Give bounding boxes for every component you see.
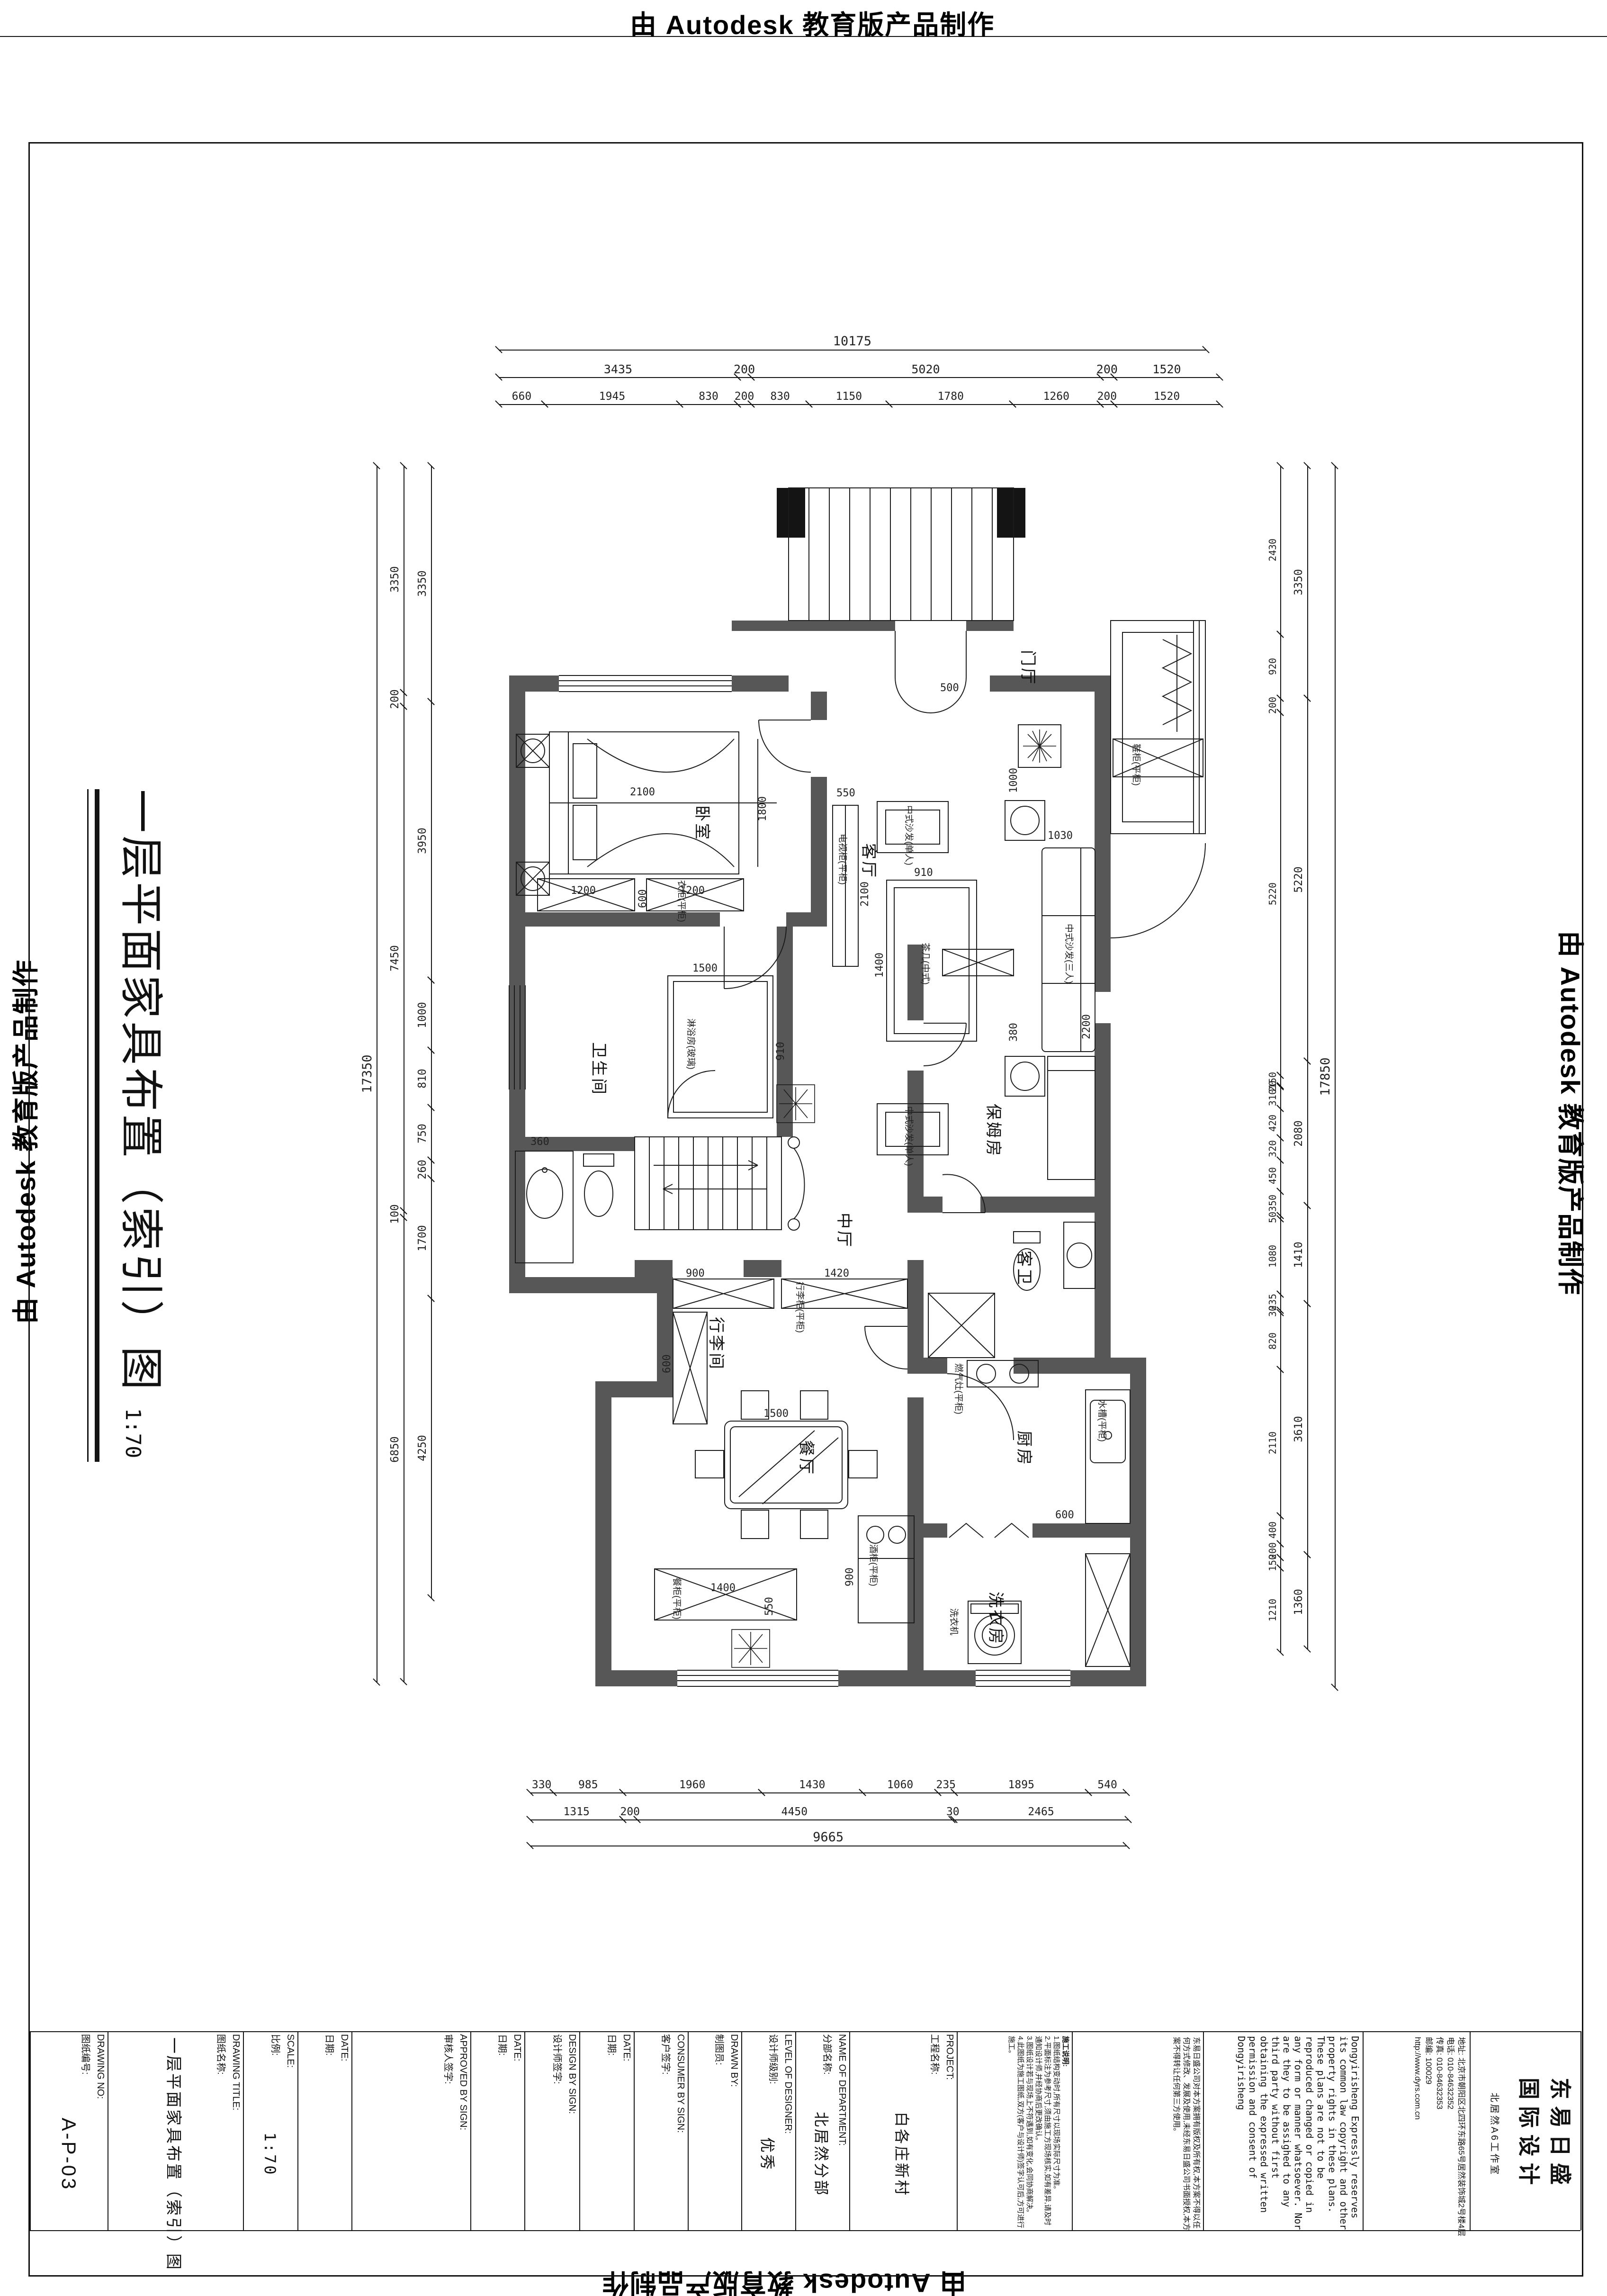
inner-dim-label: 1420: [824, 1268, 849, 1279]
inner-dim-label: 1800: [757, 786, 769, 821]
dim-label: 1410: [1293, 1222, 1306, 1288]
dim-label: 985: [555, 1779, 621, 1791]
dim-line: [530, 1819, 1128, 1820]
titleblock-cell: PROJECT:工程名称:白各庄新村: [849, 2031, 957, 2230]
titleblock-copyright-cn: 东易日盛公司对本方案拥有版权及所有权,本方案不得以任何方式修改、发展及使用,未经…: [1070, 2033, 1203, 2236]
titleblock-cell-label-cn: 比例:: [269, 2034, 283, 2056]
dim-label: 3610: [1293, 1396, 1306, 1462]
inner-dim-label: 500: [940, 682, 959, 694]
titleblock-cell-label-en: PROJECT:: [944, 2034, 955, 2080]
inner-dim-label: 600: [637, 880, 649, 908]
dim-label: 1430: [779, 1779, 845, 1791]
dim-label: 3350: [416, 550, 430, 617]
furniture-label: 餐柜(平柜): [673, 1577, 684, 1639]
inner-dim-label: 600: [661, 1345, 673, 1373]
dim-label: 1780: [917, 390, 984, 403]
dim-label: 235: [913, 1779, 979, 1791]
notes-title: 施工说明:: [1061, 2036, 1070, 2231]
inner-dim-label: 360: [530, 1136, 549, 1148]
room-label: 餐厅: [800, 1440, 819, 1483]
dim-label: 3350: [1293, 549, 1306, 615]
titleblock-copyright-en: Dongyirisheng Expressly reserves its com…: [1202, 2033, 1363, 2234]
dim-line: [1335, 466, 1336, 1687]
furniture-label: 洗衣机: [950, 1608, 961, 1641]
room-label: 保姆房: [988, 1104, 1006, 1165]
titleblock-cell-label-cn: 图纸名称:: [215, 2034, 229, 2075]
titleblock-cell-value: 一层平面家具布置（索引）图: [108, 2083, 243, 2225]
inner-dim-label: 900: [686, 1268, 705, 1279]
titleblock-cell-label-en: CONSUMER BY SIGN:: [675, 2034, 686, 2133]
dim-label: 17850: [1318, 1044, 1334, 1110]
titleblock-cell-label-cn: 工程名称:: [929, 2034, 943, 2075]
titleblock-cell: DESIGN BY SIGN:设计师签字:: [524, 2031, 579, 2230]
dim-line: [431, 466, 432, 1598]
titleblock-contact: 地址: 北京市朝阳区北四环东路65号居然装饰城2号楼4层电话: 010-8463…: [1360, 2033, 1470, 2236]
inner-dim-label: 1500: [763, 1408, 789, 1420]
inner-dim-label: 2100: [630, 786, 655, 798]
dim-label: 3350: [389, 546, 403, 612]
titleblock-cell-label-cn: 审核人签字:: [442, 2034, 456, 2084]
dim-label: 10175: [819, 334, 885, 349]
titleblock-cell: DATE:日期:: [297, 2031, 351, 2230]
titleblock-cell: SCALE:比例:1:70: [243, 2031, 297, 2230]
dim-label: 4250: [416, 1415, 430, 1481]
titleblock-cell-label-en: DRAWN BY:: [728, 2034, 739, 2087]
dim-label: 200: [1074, 390, 1140, 403]
dim-label: 1520: [1134, 390, 1200, 403]
room-label: 中厅: [838, 1213, 857, 1255]
dim-label: 200: [389, 666, 403, 732]
titleblock-cell-label-en: DATE:: [339, 2034, 350, 2061]
dim-label: 2110: [1267, 1410, 1279, 1476]
inner-dim-label: 910: [775, 1033, 787, 1061]
titleblock-cell-label-cn: 制图员:: [713, 2034, 727, 2065]
room-label: 门厅: [1022, 650, 1041, 693]
titleblock-cell: CONSUMER BY SIGN:客户签字:: [634, 2031, 688, 2230]
contact-line: 传真: 010-84632353: [1434, 2037, 1445, 2232]
inner-dim-label: 550: [836, 787, 855, 799]
furniture-label: 鞋柜(平柜): [1132, 744, 1143, 805]
inner-dim-label: 1500: [692, 963, 718, 974]
dim-label: 1150: [816, 390, 882, 403]
room-label: 厨房: [1018, 1431, 1037, 1473]
furniture-label: 酒柜(平柜): [869, 1544, 880, 1606]
inner-dim-label: 600: [1055, 1509, 1074, 1521]
dim-line: [404, 466, 404, 1682]
titleblock-cell: LEVEL OF DESIGNER:设计师级别:优秀: [741, 2031, 795, 2230]
dim-label: 7450: [389, 925, 403, 991]
titleblock-cell-label-en: APPROVED BY SIGN:: [458, 2034, 468, 2130]
titleblock-cell: DRAWING TITLE:图纸名称:一层平面家具布置（索引）图: [108, 2031, 243, 2230]
dim-label: 4450: [761, 1806, 827, 1818]
inner-dim-label: 1000: [1008, 758, 1020, 793]
inner-dim-label: 1030: [1048, 830, 1073, 842]
titleblock-cell: DATE:日期:: [470, 2031, 524, 2230]
notes-item: 2.平面标注为参考尺寸,须由施工方现场核实,如有差异,请及时通知设计师,并经协商…: [1034, 2036, 1052, 2231]
dim-line: [1307, 466, 1308, 1649]
dim-label: 5220: [1293, 846, 1306, 913]
dim-label: 5020: [892, 362, 959, 376]
dim-label: 660: [488, 390, 555, 403]
dim-line: [377, 466, 377, 1682]
inner-dim-label: 1200: [571, 885, 596, 897]
inner-dim-label: 1200: [680, 885, 705, 897]
titleblock-cell-label-cn: 日期:: [323, 2034, 337, 2056]
dim-label: 2465: [1008, 1806, 1074, 1818]
furniture-label: 燃气灶(平柜): [954, 1363, 966, 1434]
titleblock-cell: APPROVED BY SIGN:审核人签字:: [351, 2031, 470, 2230]
room-label: 卫生间: [593, 1042, 612, 1104]
company-name-line1: 东易日盛: [1546, 2037, 1577, 2232]
notes-item: 1.图纸结构变动时,所有尺寸以现场实际尺寸为准。: [1052, 2036, 1061, 2231]
titleblock-cell: DATE:日期:: [579, 2031, 634, 2230]
titleblock-cell-value: 白各庄新村: [849, 2083, 957, 2225]
dim-label: 540: [1074, 1779, 1140, 1791]
dim-label: 2430: [1267, 517, 1279, 583]
dim-label: 830: [747, 390, 813, 403]
inner-dim-label: 550: [763, 1588, 776, 1616]
titleblock-cell-label-cn: 设计师级别:: [767, 2034, 781, 2084]
titleblock-cell-label-cn: 图纸编号:: [80, 2034, 93, 2075]
titleblock-cell-value: 优秀: [741, 2083, 795, 2225]
inner-dim-label: 380: [1008, 1014, 1020, 1042]
titleblock-cell-value: A-P-03: [30, 2083, 108, 2225]
room-label: 洗衣房: [990, 1592, 1009, 1653]
dim-label: 2080: [1293, 1100, 1306, 1167]
titleblock-cell-value: 北居然分部: [795, 2083, 849, 2225]
contact-line: http://www.dyrs.com.cn: [1412, 2037, 1423, 2232]
dim-line: [1280, 466, 1281, 1652]
notes-item: 4.此图纸为施工图纸,双方(客户与设计师)签字认可后,方可进行施工。: [1007, 2036, 1025, 2231]
dim-label: 260: [416, 1136, 430, 1203]
inner-dim-label: 2100: [859, 872, 871, 907]
dim-label: 1520: [1134, 362, 1200, 376]
titleblock-cell-label-en: DATE:: [512, 2034, 522, 2061]
company-studio: 北居然A6工作室: [1489, 2037, 1502, 2232]
dim-line: [530, 1792, 1126, 1793]
contact-line: 电话: 010-84632352: [1445, 2037, 1456, 2232]
dim-label: 820: [1267, 1308, 1279, 1374]
dim-line: [530, 1846, 1126, 1846]
furniture-label: 行李柜(平柜): [796, 1282, 807, 1353]
room-label: 行李间: [710, 1317, 729, 1378]
company-name-line2: 国际设计: [1515, 2037, 1546, 2232]
furniture-label: 淋浴房(玻璃): [687, 1018, 698, 1089]
dim-line: [499, 377, 1220, 378]
notes-item: 3.图纸设计若与现场上不符遇到,如有变化,会同协商解决。: [1025, 2036, 1034, 2231]
inner-dim-label: 1400: [710, 1582, 736, 1594]
titleblock-cell-label-cn: 日期:: [496, 2034, 510, 2056]
titleblock-cell-label-en: DATE:: [621, 2034, 632, 2061]
titleblock-cell-label-cn: 设计师签字:: [551, 2034, 565, 2084]
dim-label: 1360: [1293, 1569, 1306, 1635]
room-label: 卧室: [696, 805, 715, 848]
dim-label: 3435: [585, 362, 651, 376]
titleblock-cell-label-en: SCALE:: [285, 2034, 296, 2068]
inner-dim-label: 910: [914, 867, 933, 879]
furniture-label: 中式沙发(三人): [1065, 924, 1076, 1004]
dim-line: [499, 350, 1206, 351]
inner-dim-label: 900: [844, 1558, 856, 1586]
titleblock-notes: 施工说明: 1.图纸结构变动时,所有尺寸以现场实际尺寸为准。2.平面标注为参考尺…: [955, 2033, 1072, 2234]
drawing-sheet: 由 Autodesk 教育版产品制作 由 Autodesk 教育版产品制作 由 …: [0, 0, 1607, 2296]
inner-dim-label: 2200: [1081, 1004, 1093, 1039]
furniture-label: 水槽(平柜): [1098, 1400, 1109, 1461]
titleblock-company: 东易日盛 国际设计 北居然A6工作室: [1463, 2033, 1582, 2236]
titleblock-cell-label-cn: 日期:: [606, 2034, 619, 2056]
dim-label: 1960: [659, 1779, 726, 1791]
furniture-label: 电视柜(平柜): [838, 834, 850, 905]
dim-label: 9665: [795, 1830, 862, 1845]
dim-label: 200: [711, 362, 778, 376]
dim-label: 200: [1267, 672, 1279, 738]
dim-label: 30: [920, 1806, 986, 1818]
dim-label: 17350: [360, 1041, 376, 1107]
dim-line: [499, 404, 1220, 405]
dim-label: 200: [1074, 362, 1140, 376]
room-label: 客卫: [1018, 1251, 1037, 1293]
dim-label: 3950: [416, 808, 430, 874]
furniture-label: 中式沙发(单人): [905, 1106, 916, 1187]
dim-label: 200: [597, 1806, 663, 1818]
dim-label: 1210: [1267, 1577, 1279, 1643]
dim-label: 6850: [389, 1416, 403, 1483]
dim-label: 1945: [579, 390, 645, 403]
titleblock-cell: DRAWN BY:制图员:: [688, 2031, 741, 2230]
titleblock-cell-label-cn: 客户签字:: [660, 2034, 673, 2075]
titleblock-cell: NAME OF DEPARTMENT:分部名称:北居然分部: [795, 2031, 849, 2230]
contact-line: 邮编: 100029: [1423, 2037, 1434, 2232]
dim-label: 5220: [1267, 861, 1279, 927]
dim-label: 1895: [988, 1779, 1054, 1791]
dim-label: 1700: [416, 1205, 430, 1271]
titleblock-cell-label-en: DESIGN BY SIGN:: [566, 2034, 577, 2114]
titleblock-cell: DRAWING NO:图纸编号:A-P-03: [30, 2031, 108, 2230]
floor-plan-drawing: [0, 0, 1607, 2296]
furniture-label: 茶几(中式): [921, 943, 933, 1004]
titleblock-cell-label-cn: 分部名称:: [821, 2034, 835, 2075]
dim-label: 1000: [416, 982, 430, 1048]
inner-dim-label: 1400: [874, 943, 886, 978]
titleblock-cell-value: 1:70: [243, 2083, 297, 2225]
